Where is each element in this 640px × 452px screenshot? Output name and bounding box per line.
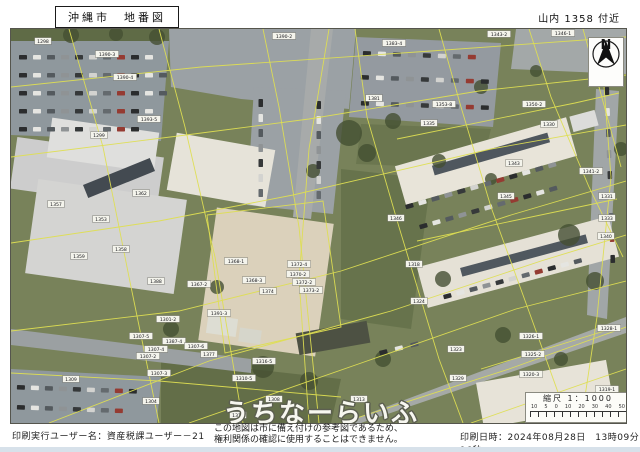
svg-text:1331: 1331	[601, 194, 613, 200]
svg-text:1320-3: 1320-3	[523, 372, 539, 378]
svg-text:1388: 1388	[150, 279, 162, 285]
parcel-label: 1316-5	[252, 358, 275, 365]
parcel-label: 1299	[91, 132, 108, 139]
svg-text:1368-3: 1368-3	[246, 278, 262, 284]
svg-text:1316-5: 1316-5	[256, 359, 272, 365]
parcel-label: 1367-2	[187, 281, 210, 288]
parcel-label: 1353-8	[432, 101, 455, 108]
parcel-label: 1368-3	[242, 277, 265, 284]
svg-text:1353-8: 1353-8	[436, 102, 452, 108]
parcel-label: 1381	[366, 95, 383, 102]
parcel-label: 1320-3	[519, 371, 542, 378]
parcel-label: 1323	[448, 346, 465, 353]
svg-text:1346-1: 1346-1	[555, 31, 571, 37]
scale-title: 縮尺 1：1000	[530, 394, 626, 404]
svg-text:1391-3: 1391-3	[211, 311, 227, 317]
parcel-label: 1343	[506, 160, 523, 167]
photo-tint-overlay	[11, 29, 626, 423]
svg-text:1299: 1299	[93, 133, 105, 139]
parcel-label: 1329	[450, 375, 467, 382]
svg-text:1357: 1357	[50, 202, 62, 208]
svg-text:1307-6: 1307-6	[188, 344, 204, 350]
parcel-label: 1318	[406, 261, 423, 268]
parcel-label: 1359	[71, 253, 88, 260]
svg-text:1359: 1359	[73, 254, 85, 260]
parcel-label: 1324	[411, 298, 428, 305]
svg-text:1307-2: 1307-2	[140, 354, 156, 360]
scale-tick: 40	[605, 404, 611, 410]
parcel-label: 1331	[599, 193, 616, 200]
svg-text:1372-4: 1372-4	[291, 262, 307, 268]
parcel-label: 1377	[201, 351, 218, 358]
svg-text:1381: 1381	[368, 96, 380, 102]
scale-tick: 50	[619, 404, 625, 410]
parcel-label: 1357	[48, 201, 65, 208]
svg-text:1304: 1304	[145, 399, 157, 405]
svg-text:1393-5: 1393-5	[141, 117, 157, 123]
svg-text:1328-1: 1328-1	[601, 326, 617, 332]
svg-text:1307-4: 1307-4	[148, 347, 164, 353]
parcel-label: 1370-2	[286, 271, 309, 278]
svg-text:1329: 1329	[452, 376, 464, 382]
scale-ruler	[530, 411, 626, 417]
parcel-label: 1393-5	[137, 116, 160, 123]
parcel-label: 1353	[93, 216, 110, 223]
cadastral-map-printout: 沖縄市 地番図 山内 1358 付近 1390-212981390-31390-…	[0, 0, 640, 452]
parcel-label: 1298	[35, 38, 52, 45]
svg-text:1301-2: 1301-2	[160, 317, 176, 323]
scale-tick: 0	[555, 404, 558, 410]
svg-text:1330: 1330	[543, 122, 555, 128]
parcel-label: 1340	[598, 233, 615, 240]
parcel-label: 1310-5	[232, 375, 255, 382]
parcel-label: 1345	[498, 193, 515, 200]
svg-text:1358: 1358	[115, 247, 127, 253]
disclaimer-line-1: この地図は市に備え付けの参考図であるため、	[214, 424, 403, 435]
parcel-label: 1350-2	[522, 101, 545, 108]
parcel-label: 1391-3	[207, 310, 230, 317]
scan-edge-strip	[0, 447, 640, 452]
scale-tick: 30	[592, 404, 598, 410]
print-user-label: 印刷実行ユーザー名：資産税課ユーザー－21	[12, 429, 205, 442]
parcel-label: 1372-2	[292, 279, 315, 286]
parcel-label: 1390-4	[113, 74, 136, 81]
parcel-label: 1346	[388, 215, 405, 222]
svg-text:1372-2: 1372-2	[296, 280, 312, 286]
scale-tick-labels: 10501020304050	[530, 404, 626, 410]
svg-text:1390-3: 1390-3	[99, 52, 115, 58]
parcel-label: 1330	[541, 121, 558, 128]
parcel-label: 1390-2	[272, 33, 295, 40]
svg-text:1343: 1343	[508, 161, 520, 167]
parcel-label: 1388	[148, 278, 165, 285]
map-title: 沖縄市 地番図	[68, 11, 166, 24]
north-arrow-icon	[589, 38, 623, 70]
svg-text:1309: 1309	[65, 377, 77, 383]
svg-text:1383-4: 1383-4	[386, 41, 402, 47]
scale-tick: 10	[565, 404, 571, 410]
svg-text:1367-2: 1367-2	[191, 282, 207, 288]
parcel-label: 1304	[143, 398, 160, 405]
svg-text:1298: 1298	[37, 39, 49, 45]
parcel-label: 1341-2	[579, 168, 602, 175]
svg-text:1373-2: 1373-2	[303, 288, 319, 294]
scale-tick: 5	[544, 404, 547, 410]
svg-text:1307-5: 1307-5	[133, 334, 149, 340]
svg-text:1370-2: 1370-2	[290, 272, 306, 278]
svg-text:1362: 1362	[135, 191, 147, 197]
parcel-label: 1358	[113, 246, 130, 253]
svg-text:1350-2: 1350-2	[526, 102, 542, 108]
parcel-label: 1373-2	[299, 287, 322, 294]
parcel-label: 1372-4	[287, 261, 310, 268]
parcel-label: 1343-2	[487, 31, 510, 38]
watermark-text: うちなーらいふ	[223, 393, 419, 424]
parcel-label: 1368-1	[224, 258, 247, 265]
svg-text:1335: 1335	[423, 121, 435, 127]
scale-tick: 10	[531, 404, 537, 410]
parcel-label: 1383-4	[382, 40, 405, 47]
svg-text:1323: 1323	[450, 347, 462, 353]
location-label: 山内 1358 付近	[538, 10, 620, 25]
svg-text:1345: 1345	[500, 194, 512, 200]
svg-text:1340: 1340	[600, 234, 612, 240]
svg-text:1318: 1318	[408, 262, 420, 268]
svg-text:1390-4: 1390-4	[117, 75, 133, 81]
scale-bar: 縮尺 1：1000 10501020304050	[525, 392, 627, 423]
svg-text:1333: 1333	[601, 216, 613, 222]
svg-text:1310-5: 1310-5	[236, 376, 252, 382]
svg-text:1326-1: 1326-1	[523, 334, 539, 340]
svg-text:1387-4: 1387-4	[166, 339, 182, 345]
parcel-label: 1362	[133, 190, 150, 197]
map-title-box: 沖縄市 地番図	[55, 6, 179, 28]
svg-text:1307-3: 1307-3	[151, 371, 167, 377]
parcel-label: 1307-5	[129, 333, 152, 340]
parcel-label: 1333	[599, 215, 616, 222]
svg-text:1325-2: 1325-2	[525, 352, 541, 358]
svg-text:1324: 1324	[413, 299, 425, 305]
parcel-label: 1301-2	[156, 316, 179, 323]
parcel-label: 1387-4	[162, 338, 185, 345]
svg-text:1390-2: 1390-2	[276, 34, 292, 40]
parcel-label: 1309	[63, 376, 80, 383]
parcel-label: 1374	[260, 288, 277, 295]
map-frame: 1390-212981390-31390-41393-512991383-413…	[10, 28, 627, 424]
parcel-label: 1307-4	[144, 346, 167, 353]
parcel-label: 1307-2	[136, 353, 159, 360]
north-compass: N	[588, 37, 624, 87]
svg-text:1374: 1374	[262, 289, 274, 295]
parcel-label: 1335	[421, 120, 438, 127]
scale-tick: 20	[578, 404, 584, 410]
parcel-label: 1325-2	[521, 351, 544, 358]
svg-text:1368-1: 1368-1	[228, 259, 244, 265]
disclaimer-line-2: 権利関係の確認に使用することはできません。	[214, 435, 403, 446]
parcel-label: 1307-3	[147, 370, 170, 377]
parcel-label: 1328-1	[597, 325, 620, 332]
parcel-label: 1326-1	[519, 333, 542, 340]
svg-text:1377: 1377	[203, 352, 215, 358]
svg-text:1343-2: 1343-2	[491, 32, 507, 38]
parcel-label: 1307-6	[184, 343, 207, 350]
parcel-label: 1346-1	[551, 30, 574, 37]
map-canvas: 1390-212981390-31390-41393-512991383-413…	[11, 29, 626, 423]
svg-text:1353: 1353	[95, 217, 107, 223]
svg-text:1346: 1346	[390, 216, 402, 222]
map-disclaimer: この地図は市に備え付けの参考図であるため、 権利関係の確認に使用することはできま…	[214, 424, 403, 445]
parcel-label: 1390-3	[95, 51, 118, 58]
svg-text:1341-2: 1341-2	[583, 169, 599, 175]
